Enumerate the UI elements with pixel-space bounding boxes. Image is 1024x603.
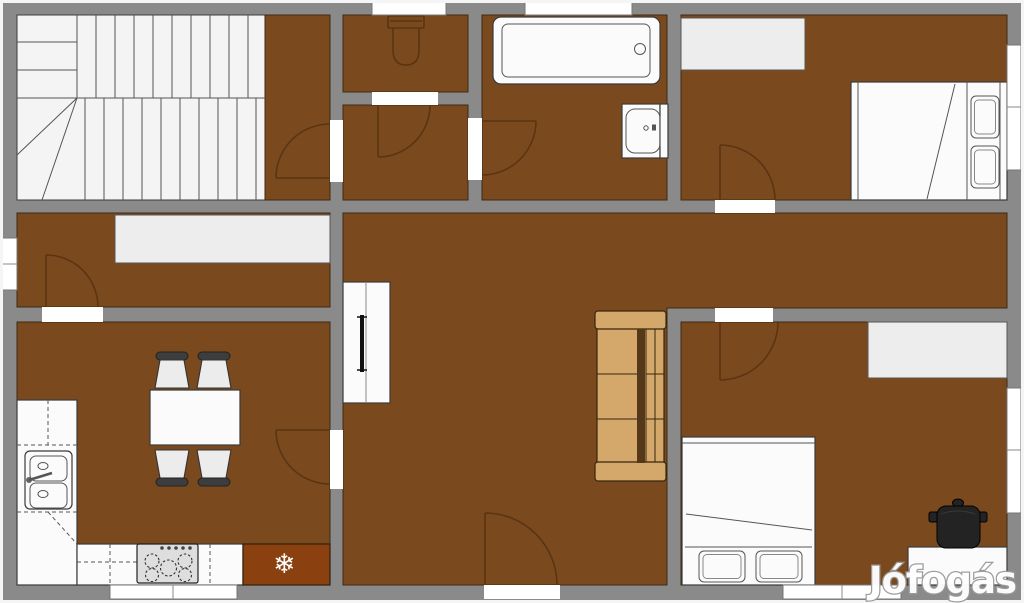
stair-landing-floor [265,15,330,200]
tv-icon [360,315,364,372]
snowflake-icon: ❄ [273,549,296,580]
bathtub [493,17,660,84]
bed-double [682,437,815,585]
tv-stand [343,282,390,403]
vestibule-floor [343,105,468,200]
stove [137,544,198,583]
chair [155,352,189,388]
staircase-floor [17,15,265,200]
wardrobe [681,18,805,70]
opening-bathroom [468,118,482,180]
tap-icon [652,125,656,131]
chair [197,450,231,486]
floorplan-drawing: ❄ [0,0,1024,603]
chair [197,352,231,388]
fridge: ❄ [243,544,330,585]
wc-floor [343,15,468,92]
opening-bedroom2 [715,308,773,322]
opening-kitchen-hall [330,430,343,489]
middle-room-cabinet [115,215,330,263]
dining-table [150,390,240,445]
chair [155,450,189,486]
opening-middle-room-kitchen [42,307,103,322]
opening-wc [372,92,438,105]
opening-stairs-vestibule [330,120,343,182]
opening-entrance [484,585,560,599]
wardrobe [868,322,1007,378]
window-bathroom [525,2,632,15]
watermark: Jófogás [866,559,1016,602]
window-wc [372,2,446,15]
bathroom-sink [622,104,668,158]
sofa [595,311,666,481]
floorplan-canvas: ❄ [0,0,1024,603]
kitchen-sink [25,451,72,509]
bed-double [851,82,1007,200]
opening-bedroom1 [715,200,775,213]
